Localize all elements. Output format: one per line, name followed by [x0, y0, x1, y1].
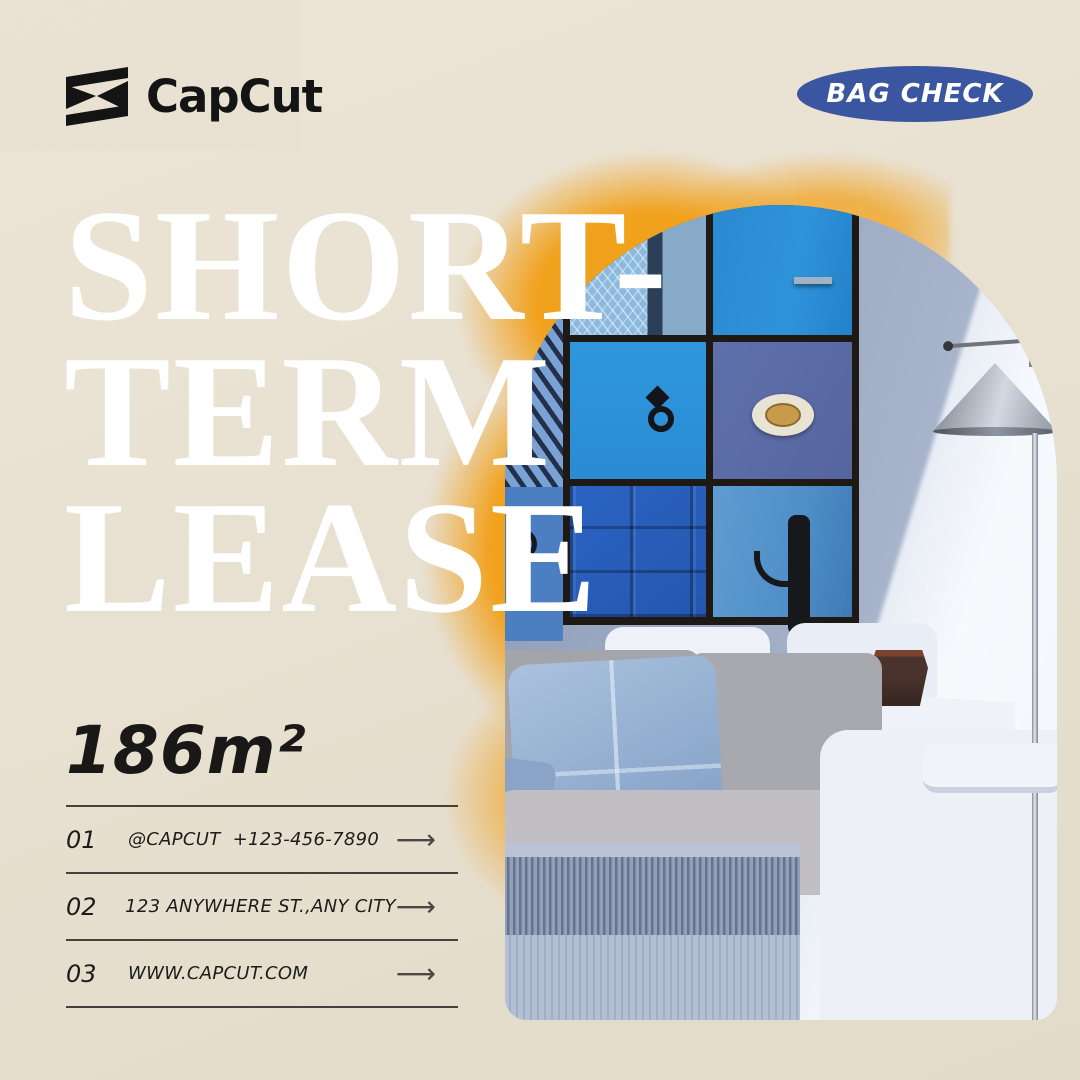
contact-list: 01 @CAPCUT +123-456-7890 ⟶ 02 123 ANYWHE…: [66, 805, 458, 1008]
capcut-logo-icon: [62, 64, 132, 128]
door-escutcheon: [752, 394, 814, 436]
contact-text: @CAPCUT +123-456-7890: [128, 829, 379, 850]
contact-text: WWW.CAPCUT.COM: [128, 963, 308, 984]
contact-row-social-phone[interactable]: 01 @CAPCUT +123-456-7890 ⟶: [66, 805, 458, 872]
contact-row-website[interactable]: 03 WWW.CAPCUT.COM ⟶: [66, 939, 458, 1006]
headline-line-2: TERM: [64, 338, 669, 484]
headline-line-1: SHORT-: [64, 192, 669, 338]
capcut-logo-text: CapCut: [146, 70, 322, 123]
arrow-right-icon[interactable]: ⟶: [396, 826, 458, 854]
tray-table: [923, 743, 1057, 793]
door-photo-slate: [713, 342, 852, 479]
door-photo-bright-blue: [713, 205, 852, 335]
arrow-right-icon[interactable]: ⟶: [396, 960, 458, 988]
headline: SHORT- TERM LEASE: [64, 192, 669, 630]
bag-check-badge: BAG CHECK: [797, 66, 1033, 122]
contact-text: 123 ANYWHERE ST.,ANY CITY: [125, 896, 396, 917]
door-photo-handle-plate: [713, 486, 852, 617]
floor-lamp-pole: [1032, 433, 1038, 1020]
arrow-right-icon[interactable]: ⟶: [396, 893, 458, 921]
poster-canvas: SHORT- TERM LEASE CapCut BAG CHECK 186m²…: [0, 0, 1080, 1080]
door-plate: [788, 515, 810, 635]
capcut-logo: CapCut: [62, 64, 322, 128]
floor-lamp-rim: [933, 427, 1057, 436]
headline-line-3: LEASE: [64, 484, 669, 630]
bag-check-badge-label: BAG CHECK: [826, 79, 1003, 109]
contact-index: 01: [66, 826, 128, 854]
throw-woven: [505, 935, 800, 1020]
contact-index: 03: [66, 960, 128, 988]
door-handle: [794, 277, 832, 284]
contact-index: 02: [66, 893, 125, 921]
throw-fringe: [505, 857, 800, 937]
area-value: 186m²: [66, 712, 306, 789]
floor-lamp-stem: [1029, 345, 1033, 367]
contact-row-address[interactable]: 02 123 ANYWHERE ST.,ANY CITY ⟶: [66, 872, 458, 939]
